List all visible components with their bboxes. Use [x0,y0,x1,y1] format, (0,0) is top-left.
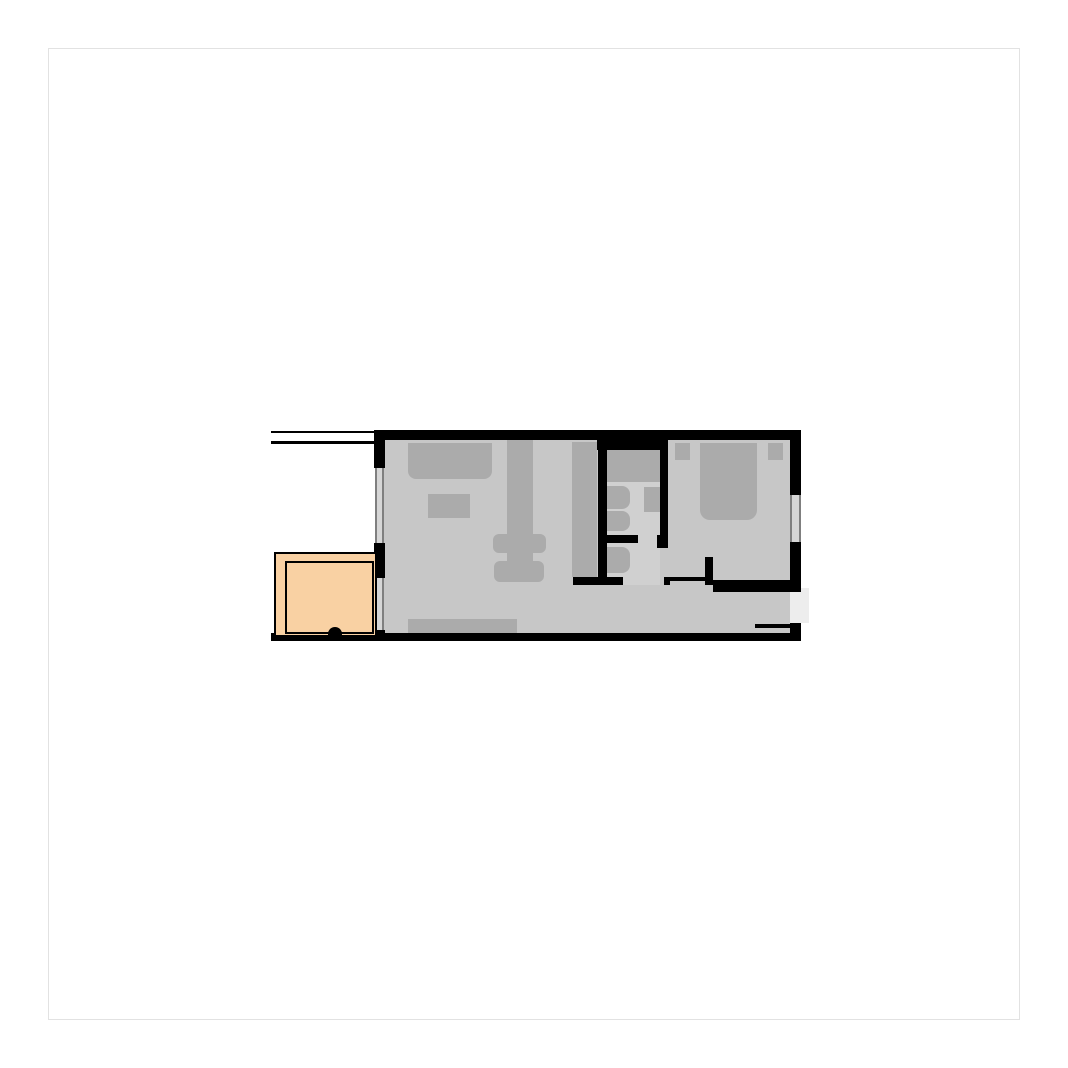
wc-bottom-wall [573,577,623,585]
right-door-opening [790,588,809,623]
floorplan-canvas [271,428,816,648]
toilet[interactable] [607,486,630,509]
bedroom-left-wall [660,442,668,548]
fence-line-upper [271,431,375,433]
wc-fixture[interactable] [607,547,630,573]
tall-cabinet[interactable] [572,442,597,577]
shower[interactable] [607,450,660,482]
left-window-upper [375,468,384,543]
fence-line-lower [271,441,375,444]
nightstand-left[interactable] [675,443,690,460]
sofa[interactable] [408,443,492,479]
bathroom-divider-wall [598,535,638,543]
bed[interactable] [700,443,757,520]
kitchen-island[interactable] [507,440,533,580]
bathroom-top-wall [597,440,668,450]
right-wall-upper [790,430,801,495]
bedroom-door-hinge [664,577,670,585]
bottom-couch[interactable] [408,619,517,633]
bathroom-left-wall [598,442,607,585]
nightstand-right[interactable] [768,443,783,460]
bedroom-bottom-wall [713,580,801,592]
dining-chairs-lower[interactable] [494,561,544,582]
left-wall-upper [374,430,385,468]
right-window [790,495,801,542]
porch-inner-outline [285,561,374,634]
porch-post-dot[interactable] [328,627,342,641]
bedroom-door-jamb [705,557,713,585]
dining-chairs-upper[interactable] [493,534,546,553]
sink[interactable] [644,487,660,512]
coffee-table[interactable] [428,494,470,518]
top-wall [374,430,801,440]
bidet[interactable] [607,511,630,531]
entry-step-line [755,624,792,628]
bedroom-door-leaf [664,577,705,581]
